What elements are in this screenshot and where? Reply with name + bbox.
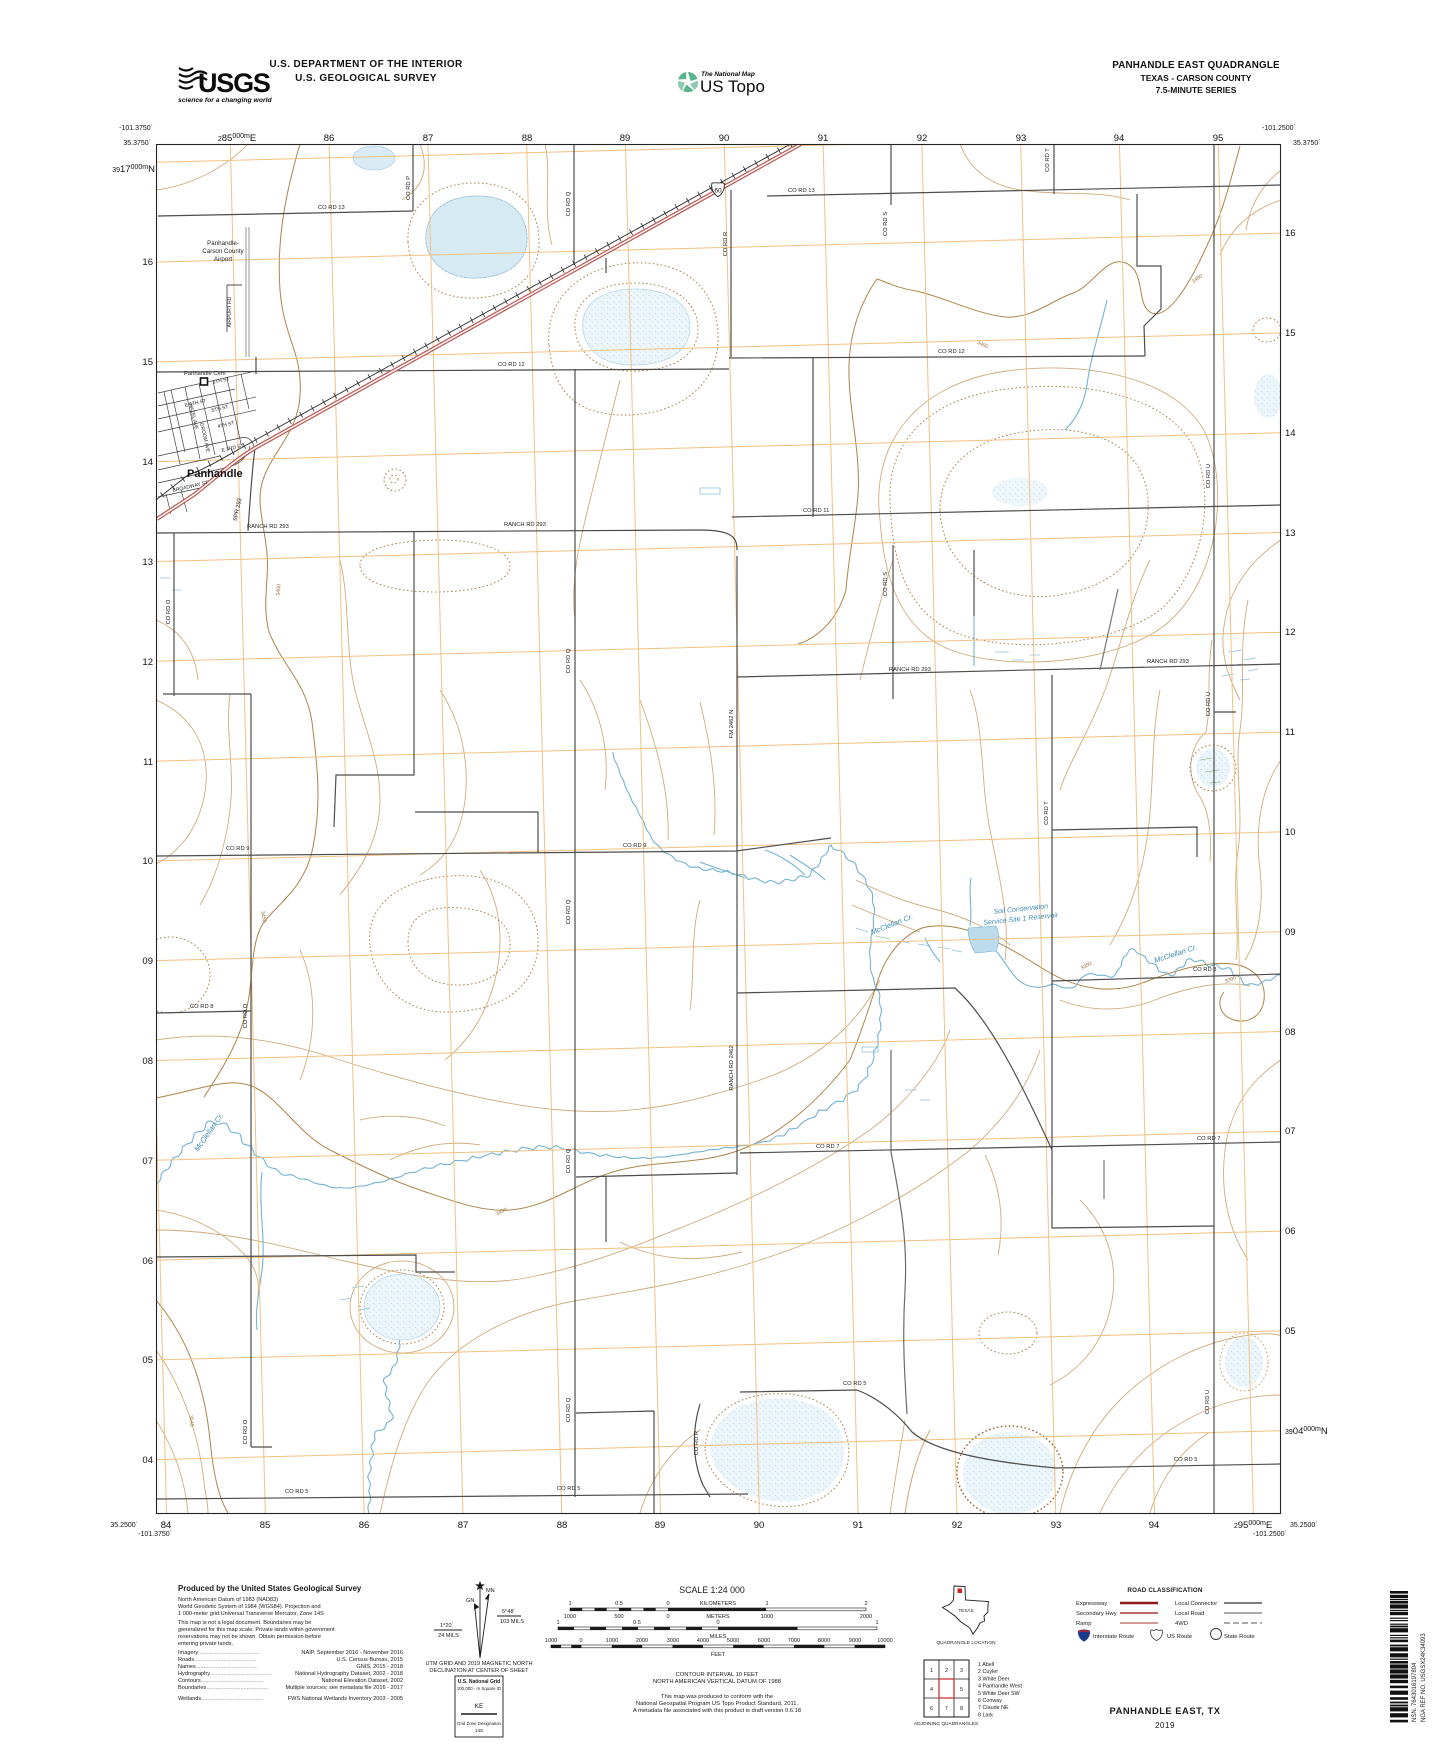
- svg-text:86: 86: [359, 1520, 370, 1531]
- svg-text:35.3750´: 35.3750´: [123, 140, 151, 147]
- svg-text:Wetlands......................: Wetlands................................…: [178, 1696, 264, 1702]
- svg-text:60: 60: [714, 188, 722, 195]
- svg-text:U.S. GEOLOGICAL SURVEY: U.S. GEOLOGICAL SURVEY: [295, 73, 437, 84]
- svg-text:CO RD O: CO RD O: [243, 1003, 249, 1028]
- svg-text:generalized for this map scale: generalized for this map scale. Private …: [178, 1627, 335, 1633]
- svg-text:Panhandle: Panhandle: [187, 468, 243, 480]
- svg-text:CONTOUR INTERVAL 10 FEET: CONTOUR INTERVAL 10 FEET: [676, 1672, 759, 1678]
- svg-text:CO RD 7: CO RD 7: [816, 1144, 840, 1150]
- svg-text:CO RD 5: CO RD 5: [285, 1489, 309, 1495]
- svg-text:CO RD O: CO RD O: [166, 599, 172, 624]
- svg-text:CO RD S: CO RD S: [883, 572, 889, 596]
- svg-text:National Hydrography Datas: National Hydrography Dataset, 2002 - 201…: [295, 1671, 403, 1677]
- svg-text:KE: KE: [475, 1703, 484, 1710]
- svg-text:Panhandle Cem: Panhandle Cem: [184, 371, 226, 377]
- svg-text:PANHANDLE EAST QUADRANGLE: PANHANDLE EAST QUADRANGLE: [1112, 60, 1280, 71]
- svg-text:2 Cuyler: 2 Cuyler: [978, 1669, 998, 1675]
- svg-text:U.S. National Grid: U.S. National Grid: [458, 1679, 501, 1685]
- svg-text:CO RD 7: CO RD 7: [1197, 1136, 1221, 1142]
- svg-text:07: 07: [1285, 1126, 1296, 1137]
- svg-text:CO RD R: CO RD R: [723, 232, 729, 256]
- svg-text:ROAD CLASSIFICATION: ROAD CLASSIFICATION: [1127, 1587, 1203, 1594]
- svg-text:1 000-meter grid:Universal Tra: 1 000-meter grid:Universal Transverse Me…: [178, 1611, 324, 1617]
- svg-text:9000: 9000: [849, 1638, 861, 1644]
- svg-text:10: 10: [1285, 827, 1296, 838]
- svg-text:CO RD 11: CO RD 11: [803, 508, 829, 514]
- svg-text:16: 16: [1285, 228, 1296, 239]
- svg-text:89: 89: [620, 133, 631, 144]
- svg-text:reservations may not be shown.: reservations may not be shown. Obtain pe…: [178, 1634, 321, 1640]
- svg-text:U.S. DEPARTMENT OF THE INTERIO: U.S. DEPARTMENT OF THE INTERIOR: [269, 59, 463, 70]
- svg-text:90: 90: [754, 1520, 765, 1531]
- svg-text:13: 13: [142, 557, 153, 568]
- svg-text:CO RD 9: CO RD 9: [623, 843, 647, 849]
- svg-text:Airport: Airport: [214, 256, 233, 263]
- svg-text:RANCH RD 293: RANCH RD 293: [889, 667, 931, 673]
- svg-text:U.S. Census Bureau,: U.S. Census Bureau, 2015: [336, 1657, 403, 1663]
- svg-text:1: 1: [556, 1620, 559, 1626]
- svg-text:-101.3750´: -101.3750´: [119, 125, 153, 132]
- svg-text:CO RD T: CO RD T: [1045, 148, 1051, 172]
- svg-text:15: 15: [1285, 328, 1296, 339]
- svg-text:Boundaries....................: Boundaries..............................…: [178, 1685, 269, 1691]
- svg-text:1: 1: [875, 1620, 878, 1626]
- svg-text:4 Panhandle West: 4 Panhandle West: [978, 1684, 1022, 1690]
- svg-text:2000: 2000: [636, 1638, 648, 1644]
- svg-text:3: 3: [960, 1668, 963, 1674]
- svg-text:CO RD U: CO RD U: [1205, 1390, 1211, 1414]
- svg-text:1 Abell: 1 Abell: [978, 1662, 994, 1668]
- svg-text:14: 14: [1285, 428, 1296, 439]
- svg-text:CO RD O: CO RD O: [243, 1419, 249, 1444]
- svg-text:3 White Deer: 3 White Deer: [978, 1676, 1010, 1682]
- svg-text:12: 12: [1285, 627, 1296, 638]
- svg-text:State Route: State Route: [1224, 1634, 1255, 1640]
- svg-text:US Topo: US Topo: [700, 77, 765, 96]
- svg-text:09: 09: [142, 956, 153, 967]
- svg-text:TEXAS - CARSON COUNTY: TEXAS - CARSON COUNTY: [1141, 73, 1252, 83]
- svg-text:FWS National Wetlands: FWS National Wetlands Inventory 2003 - 2…: [288, 1696, 403, 1702]
- svg-text:1°20´: 1°20´: [440, 1623, 454, 1629]
- svg-text:5°48´: 5°48´: [502, 1609, 516, 1615]
- svg-text:Local Connector: Local Connector: [1175, 1601, 1217, 1607]
- svg-text:0.5: 0.5: [615, 1601, 623, 1607]
- svg-text:CO RD 13: CO RD 13: [318, 205, 345, 211]
- svg-text:NGA REF NO. USGSX24K34093: NGA REF NO. USGSX24K34093: [1421, 1633, 1427, 1722]
- svg-text:0: 0: [579, 1638, 582, 1644]
- svg-text:6 Conway: 6 Conway: [978, 1698, 1002, 1704]
- svg-text:91: 91: [853, 1520, 864, 1531]
- svg-text:4: 4: [930, 1687, 933, 1693]
- svg-text:04: 04: [142, 1455, 153, 1466]
- svg-text:500: 500: [614, 1614, 623, 1620]
- svg-text:1: 1: [930, 1668, 933, 1674]
- svg-text:GN: GN: [466, 1598, 474, 1604]
- svg-text:Panhandle-: Panhandle-: [207, 240, 239, 247]
- svg-text:CO RD Q: CO RD Q: [566, 191, 572, 216]
- svg-text:8: 8: [960, 1706, 963, 1712]
- svg-text:RANCH RD 293: RANCH RD 293: [1147, 659, 1189, 665]
- svg-text:TEXAS: TEXAS: [958, 1608, 973, 1613]
- svg-text:CO RD S: CO RD S: [883, 212, 889, 236]
- svg-text:07: 07: [142, 1156, 153, 1167]
- svg-text:A metadata file associated wit: A metadata file associated with this pro…: [633, 1708, 801, 1714]
- svg-text:CO RD Q: CO RD Q: [566, 1397, 572, 1422]
- svg-text:11: 11: [143, 757, 153, 768]
- svg-text:05: 05: [142, 1355, 153, 1366]
- svg-text:NSN. 7643016197804: NSN. 7643016197804: [1412, 1662, 1418, 1722]
- svg-text:92: 92: [917, 133, 928, 144]
- svg-text:7000: 7000: [788, 1638, 800, 1644]
- svg-text:Expressway: Expressway: [1076, 1601, 1107, 1607]
- svg-text:DECLINATION AT CENTER OF SHEET: DECLINATION AT CENTER OF SHEET: [429, 1668, 529, 1674]
- svg-text:Contours......................: Contours................................…: [178, 1678, 263, 1684]
- svg-text:CO RD 5: CO RD 5: [557, 1486, 581, 1492]
- svg-text:Multiple sources; see me: Multiple sources; see metadata file 2016…: [285, 1685, 403, 1691]
- svg-text:entering private lands.: entering private lands.: [178, 1641, 233, 1647]
- svg-text:100,000 - m Square ID: 100,000 - m Square ID: [457, 1686, 501, 1691]
- svg-text:SCALE 1:24 000: SCALE 1:24 000: [679, 1585, 745, 1595]
- svg-text:35.2500´: 35.2500´: [110, 1522, 138, 1529]
- svg-text:NORTH AMERICAN VERTICAL DATUM: NORTH AMERICAN VERTICAL DATUM OF 1988: [653, 1679, 781, 1685]
- svg-text:CO RD 12: CO RD 12: [498, 362, 525, 368]
- svg-text:CO RD P: CO RD P: [406, 176, 412, 200]
- svg-text:MN: MN: [486, 1588, 495, 1594]
- svg-text:North American Datum of 1983 (: North American Datum of 1983 (NAD83): [178, 1597, 278, 1603]
- svg-text:ADJOINING QUADRANGLES: ADJOINING QUADRANGLES: [914, 1721, 978, 1727]
- svg-text:USGS: USGS: [198, 68, 270, 98]
- svg-text:1000: 1000: [545, 1638, 557, 1644]
- svg-text:NAIP, September 2016 - Novembe: NAIP, September 2016 - November 2016: [301, 1650, 403, 1656]
- svg-text:QUADRANGLE LOCATION: QUADRANGLE LOCATION: [936, 1640, 996, 1646]
- svg-text:RANCH RD 2462: RANCH RD 2462: [729, 1045, 735, 1090]
- svg-text:16: 16: [142, 257, 153, 268]
- svg-text:science for a changing world: science for a changing world: [178, 97, 273, 104]
- svg-text:0.5: 0.5: [633, 1620, 641, 1626]
- svg-text:09: 09: [1285, 927, 1296, 938]
- svg-text:CO RD Q: CO RD Q: [566, 1148, 572, 1173]
- svg-text:Imagery.......................: Imagery.................................…: [178, 1650, 260, 1656]
- svg-text:06: 06: [142, 1256, 153, 1267]
- svg-text:87: 87: [423, 133, 434, 144]
- svg-text:3540: 3540: [188, 1415, 195, 1427]
- svg-text:5: 5: [960, 1687, 963, 1693]
- svg-text:This map was produced to confo: This map was produced to conform with th…: [661, 1694, 773, 1700]
- svg-text:0: 0: [666, 1601, 669, 1607]
- svg-text:08: 08: [1285, 1027, 1296, 1038]
- svg-text:35.3750´: 35.3750´: [1293, 140, 1321, 147]
- svg-text:National Elevation Datas: National Elevation Dataset, 2002: [322, 1678, 403, 1684]
- svg-text:CO RD 12: CO RD 12: [938, 349, 965, 355]
- svg-text:AIRPORT RD: AIRPORT RD: [227, 296, 233, 327]
- svg-text:6: 6: [930, 1706, 933, 1712]
- svg-text:95: 95: [1213, 133, 1224, 144]
- svg-text:CO RD T: CO RD T: [1044, 801, 1050, 825]
- svg-text:CO RD 9: CO RD 9: [226, 846, 250, 852]
- svg-text:05: 05: [1285, 1326, 1296, 1337]
- svg-text:Interstate Route: Interstate Route: [1093, 1634, 1134, 1640]
- svg-text:KILOMETERS: KILOMETERS: [700, 1601, 736, 1607]
- svg-text:88: 88: [522, 133, 533, 144]
- svg-text:UTM GRID AND 2019 MAGNETIC NOR: UTM GRID AND 2019 MAGNETIC NORTH: [425, 1661, 532, 1667]
- svg-text:91: 91: [818, 133, 829, 144]
- svg-text:GNIS, 2015 - 2018: GNIS, 2015 - 2018: [356, 1664, 403, 1670]
- svg-text:RANCH RD 293: RANCH RD 293: [247, 524, 289, 530]
- svg-text:12: 12: [142, 657, 153, 668]
- svg-text:CO RD U: CO RD U: [1206, 692, 1212, 716]
- svg-text:93: 93: [1016, 133, 1027, 144]
- svg-text:CO RD 5: CO RD 5: [843, 1381, 867, 1387]
- svg-text:90: 90: [719, 133, 730, 144]
- svg-text:National Geospatial Program US: National Geospatial Program US Topo Prod…: [636, 1701, 799, 1707]
- svg-text:89: 89: [655, 1520, 666, 1531]
- svg-text:2000: 2000: [860, 1614, 872, 1620]
- svg-text:CO RD 8: CO RD 8: [190, 1004, 214, 1010]
- svg-text:87: 87: [458, 1520, 469, 1531]
- svg-text:92: 92: [952, 1520, 963, 1531]
- svg-text:2019: 2019: [1155, 1721, 1175, 1730]
- svg-text:84: 84: [161, 1520, 172, 1531]
- svg-text:10: 10: [142, 856, 153, 867]
- svg-text:13: 13: [1285, 528, 1296, 539]
- svg-text:14: 14: [142, 457, 153, 468]
- svg-text:86: 86: [324, 133, 335, 144]
- svg-text:5 White Deer SW: 5 White Deer SW: [978, 1691, 1021, 1697]
- svg-text:FM 2462 N: FM 2462 N: [729, 710, 735, 739]
- svg-text:3460: 3460: [276, 584, 283, 596]
- svg-text:93: 93: [1051, 1520, 1062, 1531]
- svg-text:2: 2: [864, 1601, 867, 1607]
- svg-text:103 MILS: 103 MILS: [500, 1619, 524, 1625]
- svg-text:35.2500´: 35.2500´: [1290, 1522, 1318, 1529]
- svg-text:Grid Zone Designation: Grid Zone Designation: [457, 1721, 501, 1726]
- svg-text:1000: 1000: [606, 1638, 618, 1644]
- svg-text:11: 11: [1285, 727, 1295, 738]
- svg-text:0: 0: [666, 1614, 669, 1620]
- svg-text:CO RD Q: CO RD Q: [566, 899, 572, 924]
- svg-text:Carson County: Carson County: [202, 248, 244, 255]
- svg-text:88: 88: [557, 1520, 568, 1531]
- svg-text:1000: 1000: [564, 1614, 576, 1620]
- svg-text:US Route: US Route: [1167, 1634, 1192, 1640]
- svg-text:-101.2500´: -101.2500´: [1253, 1531, 1287, 1538]
- svg-text:08: 08: [142, 1056, 153, 1067]
- svg-text:CO RD Q: CO RD Q: [566, 648, 572, 673]
- svg-text:24 MILS: 24 MILS: [438, 1633, 459, 1639]
- svg-text:10000: 10000: [877, 1638, 893, 1644]
- svg-text:-101.3750´: -101.3750´: [138, 1531, 172, 1538]
- svg-text:6000: 6000: [758, 1638, 770, 1644]
- svg-text:This map is not a legal docume: This map is not a legal document. Bounda…: [178, 1620, 311, 1626]
- svg-text:RANCH RD 293: RANCH RD 293: [504, 522, 546, 528]
- svg-text:FEET: FEET: [711, 1652, 726, 1658]
- svg-text:Local Road: Local Road: [1175, 1611, 1204, 1617]
- svg-text:0: 0: [716, 1620, 719, 1626]
- svg-text:Ramp: Ramp: [1076, 1621, 1091, 1627]
- svg-text:1: 1: [568, 1601, 571, 1607]
- svg-text:2: 2: [945, 1668, 948, 1674]
- svg-text:7.5-MINUTE SERIES: 7.5-MINUTE SERIES: [1156, 85, 1237, 95]
- svg-text:7: 7: [945, 1706, 948, 1712]
- svg-text:4WD: 4WD: [1175, 1621, 1188, 1627]
- svg-text:06: 06: [1285, 1226, 1296, 1237]
- svg-text:Hydrography...................: Hydrography.............................…: [178, 1671, 272, 1677]
- svg-text:CO RD 13: CO RD 13: [788, 188, 815, 194]
- svg-text:94: 94: [1149, 1520, 1160, 1531]
- svg-text:PANHANDLE EAST, TX: PANHANDLE EAST, TX: [1110, 1705, 1221, 1716]
- svg-text:CO RD R: CO RD R: [694, 1431, 700, 1455]
- svg-text:Produced by the United States: Produced by the United States Geological…: [178, 1584, 362, 1593]
- svg-text:14S: 14S: [475, 1728, 484, 1734]
- svg-text:5000: 5000: [727, 1638, 739, 1644]
- svg-text:3000: 3000: [667, 1638, 679, 1644]
- svg-text:CO RD 8: CO RD 8: [1193, 967, 1217, 973]
- svg-text:Secondary Hwy: Secondary Hwy: [1076, 1611, 1117, 1617]
- svg-text:CO RD 5: CO RD 5: [1174, 1457, 1198, 1463]
- svg-text:4000: 4000: [697, 1638, 709, 1644]
- svg-text:15: 15: [142, 357, 153, 368]
- svg-text:CO RD U: CO RD U: [1206, 464, 1212, 488]
- svg-text:-101.2500´: -101.2500´: [1262, 125, 1296, 132]
- svg-text:7 Claude NE: 7 Claude NE: [978, 1705, 1009, 1711]
- svg-text:85: 85: [260, 1520, 271, 1531]
- svg-text:Names.........................: Names...................................…: [178, 1664, 258, 1670]
- svg-text:MILES: MILES: [710, 1634, 727, 1640]
- svg-text:World Geodetic System of 1984: World Geodetic System of 1984 (WGS84). P…: [178, 1604, 321, 1610]
- svg-text:8000: 8000: [818, 1638, 830, 1644]
- svg-text:8 Lark: 8 Lark: [978, 1712, 993, 1718]
- svg-text:1000: 1000: [761, 1614, 773, 1620]
- svg-text:1: 1: [765, 1601, 768, 1607]
- svg-text:94: 94: [1114, 133, 1125, 144]
- svg-text:Roads.........................: Roads...................................…: [178, 1657, 257, 1663]
